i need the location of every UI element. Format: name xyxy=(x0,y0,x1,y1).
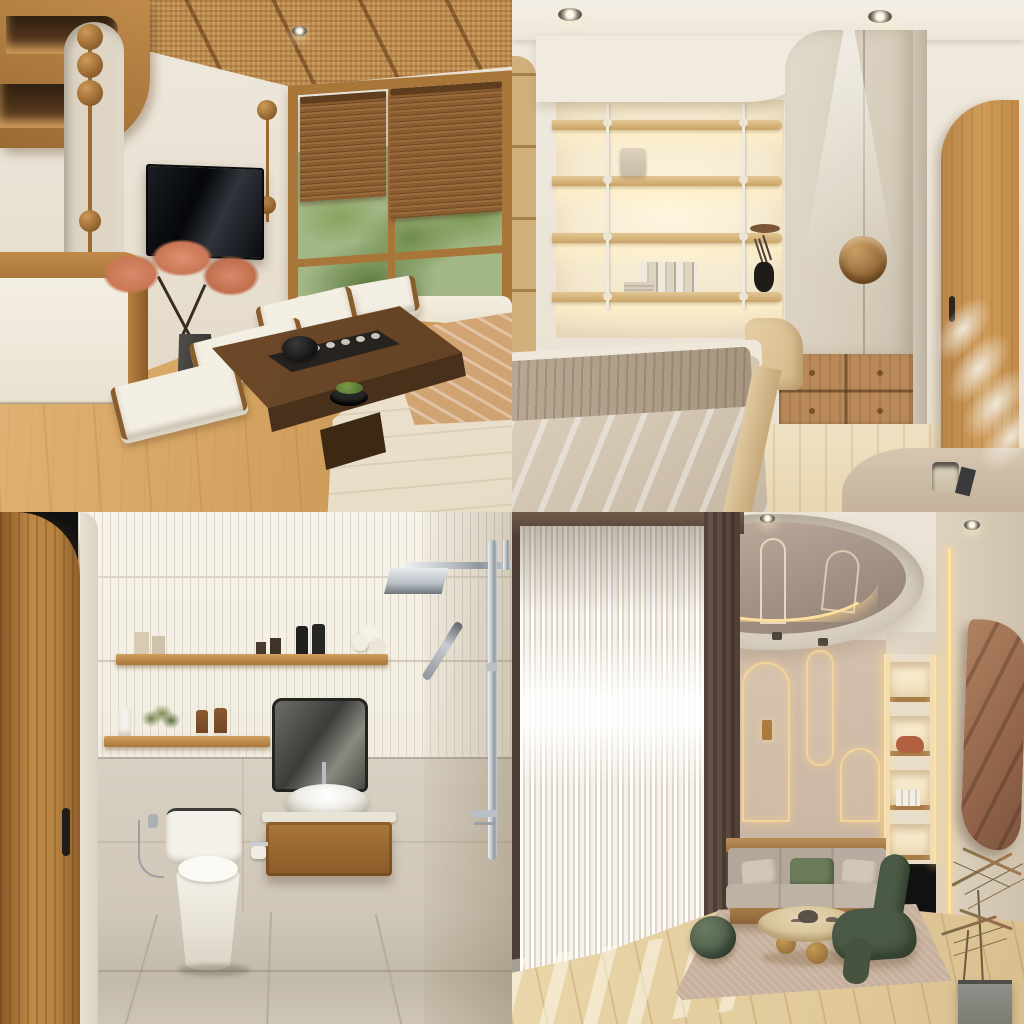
table-pedestal xyxy=(0,0,512,512)
door-frame xyxy=(80,512,98,1024)
rust-sculpture xyxy=(896,736,924,753)
ceiling xyxy=(512,0,1024,40)
curtain-light-band xyxy=(520,636,726,786)
concrete-planter xyxy=(958,980,1012,1024)
toilet-paper-roll xyxy=(251,846,266,859)
wall-sconce xyxy=(762,720,772,740)
upper-wooden-shelf xyxy=(116,654,388,665)
display-shelf xyxy=(552,233,782,243)
white-pump-bottle xyxy=(118,708,131,736)
teapot xyxy=(282,336,318,360)
shelf-plant xyxy=(138,700,182,734)
led-strip-right-wall xyxy=(948,548,951,952)
wardrobe-side xyxy=(913,30,927,428)
rolled-towels xyxy=(352,634,369,651)
black-pump-bottle xyxy=(312,624,325,656)
shelf-rod xyxy=(606,104,609,310)
table-edge xyxy=(0,0,512,512)
bathroom-arched-door xyxy=(0,512,80,1024)
panel-lounge xyxy=(512,512,1024,1024)
amber-bottle xyxy=(196,710,208,736)
led-strip xyxy=(884,654,886,864)
tea-tray-runner xyxy=(0,0,512,512)
amber-bottle xyxy=(214,708,227,736)
table-top xyxy=(0,0,512,512)
ceiling-spotlight xyxy=(558,8,582,21)
vanity-counter xyxy=(262,812,396,822)
book-stack xyxy=(624,282,654,292)
toilet-shadow xyxy=(178,964,250,976)
led-strip xyxy=(934,654,936,864)
ceiling-spotlight xyxy=(760,514,775,523)
shower-mixer xyxy=(472,810,498,817)
display-shelf xyxy=(552,292,782,302)
moss xyxy=(336,382,363,394)
shelf-glow xyxy=(556,130,782,156)
white-books xyxy=(896,790,920,806)
toilet-seat xyxy=(178,856,238,882)
tinted-mirror xyxy=(272,698,368,792)
rain-shower-head xyxy=(384,568,448,594)
ceiling-spotlight xyxy=(964,520,980,530)
shower-riser xyxy=(503,540,510,570)
lower-shelf-items xyxy=(108,700,278,738)
cosmetic-box xyxy=(152,636,165,656)
panel-bedroom xyxy=(512,0,1024,512)
circular-handle xyxy=(839,236,887,284)
shelf-glow xyxy=(556,186,782,212)
black-vase xyxy=(754,262,774,292)
lower-wooden-shelf xyxy=(104,736,270,747)
door-handle xyxy=(62,808,70,856)
vanity-cabinet xyxy=(266,822,392,876)
rail-knob xyxy=(486,662,498,672)
tea-table xyxy=(0,0,512,512)
display-shelf xyxy=(552,120,782,130)
display-shelf xyxy=(552,176,782,186)
shelf-rod xyxy=(742,104,745,310)
spotlight-cone xyxy=(803,30,895,265)
upper-shelf-items xyxy=(120,620,400,656)
display-niche xyxy=(890,662,930,702)
table-ball-foot xyxy=(806,942,828,964)
black-pump-bottle xyxy=(296,626,308,656)
bulkhead xyxy=(536,36,816,102)
wooden-bowl xyxy=(750,224,780,233)
knot-pouf xyxy=(690,916,736,959)
drawer-knobs xyxy=(809,370,815,376)
faucet xyxy=(322,762,326,786)
tea-set xyxy=(798,910,818,923)
table-lamp xyxy=(620,148,646,176)
panel-bathroom xyxy=(0,512,512,1024)
panel-living-room xyxy=(0,0,512,512)
ceiling-spotlight xyxy=(868,10,892,23)
curtain-top-shade xyxy=(520,526,726,616)
drape-wall-art xyxy=(960,619,1024,851)
arch-niche-small xyxy=(840,748,880,822)
green-chair-seat xyxy=(830,905,917,963)
shelf-column xyxy=(884,654,936,864)
arch-niche-tall xyxy=(742,662,790,822)
sprayer-hose xyxy=(138,820,164,878)
interior-collage xyxy=(0,0,1024,1024)
arch-channel xyxy=(806,650,834,766)
rod-ball-joints xyxy=(603,118,612,127)
wardrobe xyxy=(785,30,913,356)
cosmetic-box xyxy=(134,632,149,656)
